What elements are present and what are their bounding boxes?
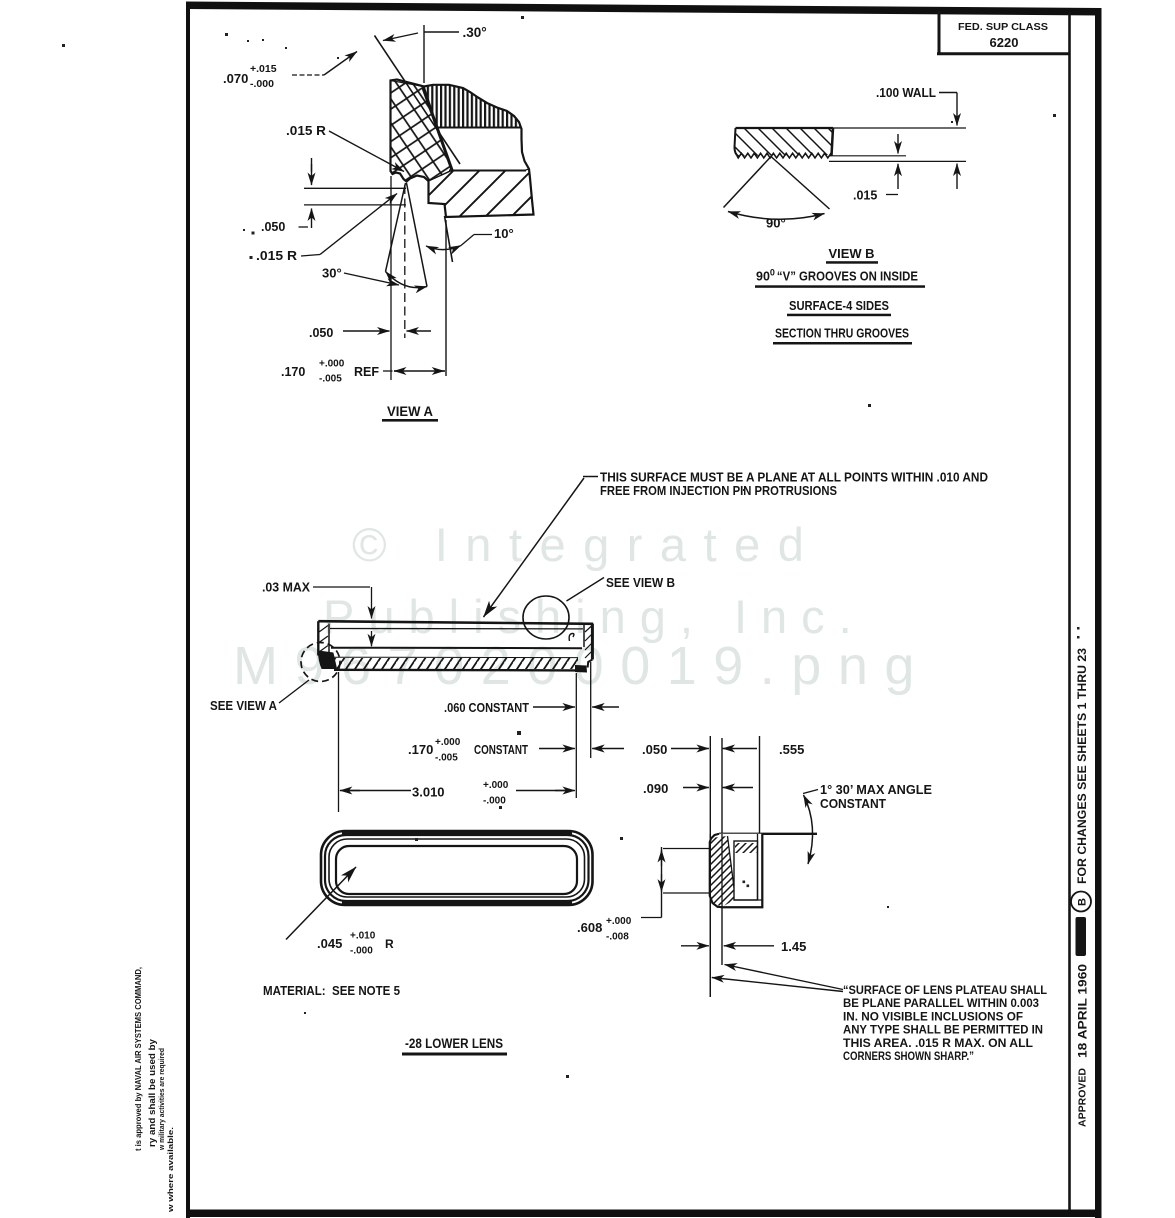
svg-text:SECTION THRU GROOVES: SECTION THRU GROOVES — [775, 327, 909, 341]
svg-text:VIEW A: VIEW A — [387, 404, 433, 419]
svg-text:SURFACE-4 SIDES: SURFACE-4 SIDES — [789, 299, 889, 313]
svg-text:+.010: +.010 — [350, 931, 376, 942]
svg-text:+.000: +.000 — [483, 780, 509, 791]
svg-text:.170: .170 — [281, 365, 305, 379]
svg-text:30°: 30° — [322, 266, 342, 281]
svg-text:R: R — [385, 937, 394, 951]
svg-text:MATERIAL: SEE NOTE 5: MATERIAL: SEE NOTE 5 — [263, 984, 400, 998]
svg-text:18 APRIL 1960: 18 APRIL 1960 — [1076, 964, 1090, 1058]
svg-text:1° 30’ MAX ANGLE: 1° 30’ MAX ANGLE — [820, 783, 932, 797]
svg-text:THIS AREA. .015 R MAX. ON ALL: THIS AREA. .015 R MAX. ON ALL — [843, 1036, 1033, 1050]
svg-text:.03 MAX: .03 MAX — [262, 581, 311, 595]
svg-text:3.010: 3.010 — [412, 785, 445, 800]
svg-text:© Integrated: © Integrated — [352, 518, 821, 571]
svg-text:B: B — [1077, 898, 1089, 906]
svg-text:+.015: +.015 — [250, 63, 277, 75]
svg-text:90°: 90° — [766, 216, 786, 231]
svg-text:6220: 6220 — [990, 35, 1019, 50]
svg-text:FED. SUP CLASS: FED. SUP CLASS — [958, 21, 1048, 33]
svg-text:900“V” GROOVES ON INSIDE: 900“V” GROOVES ON INSIDE — [756, 268, 918, 284]
svg-text:+.000: +.000 — [319, 359, 345, 370]
svg-text:.050: .050 — [642, 742, 667, 757]
svg-text:CONSTANT: CONSTANT — [474, 743, 528, 757]
svg-text:SEE VIEW B: SEE VIEW B — [606, 576, 675, 590]
svg-text:-28 LOWER LENS: -28 LOWER LENS — [405, 1036, 503, 1051]
svg-text:-.008: -.008 — [606, 932, 629, 943]
svg-text:REF: REF — [354, 365, 379, 379]
svg-text:.555: .555 — [779, 742, 804, 757]
svg-text:.060 CONSTANT: .060 CONSTANT — [444, 701, 529, 715]
svg-text:10°: 10° — [494, 226, 514, 241]
svg-text:SEE VIEW A: SEE VIEW A — [210, 699, 277, 713]
svg-text:-.005: -.005 — [319, 374, 342, 385]
svg-text:“SURFACE OF LENS PLATEAU SHALL: “SURFACE OF LENS PLATEAU SHALL — [843, 983, 1047, 997]
svg-text:.30°: .30° — [463, 25, 487, 40]
svg-text:.100 WALL: .100 WALL — [876, 86, 936, 100]
svg-text:ry and shall be used by: ry and shall be used by — [147, 1039, 157, 1147]
svg-text:.015 R: .015 R — [256, 249, 297, 263]
svg-text:-.000: -.000 — [250, 78, 274, 90]
svg-text:ANY TYPE SHALL BE PERMITTED IN: ANY TYPE SHALL BE PERMITTED IN — [843, 1023, 1043, 1037]
svg-text:.608: .608 — [577, 920, 602, 935]
svg-text:CORNERS SHOWN SHARP.”: CORNERS SHOWN SHARP.” — [843, 1049, 974, 1063]
svg-text:-.000: -.000 — [350, 946, 373, 957]
svg-text:CONSTANT: CONSTANT — [820, 797, 886, 811]
svg-text:.015 R: .015 R — [286, 124, 326, 138]
svg-text:+.000: +.000 — [606, 916, 632, 927]
svg-text:APPROVED: APPROVED — [1077, 1068, 1089, 1127]
svg-text:1.45: 1.45 — [781, 939, 806, 954]
svg-text:FREE FROM INJECTION PIN PROTRU: FREE FROM INJECTION PIN PROTRUSIONS — [600, 483, 837, 498]
svg-text:FOR CHANGES SEE SHEETS 1 THRU: FOR CHANGES SEE SHEETS 1 THRU 23 — [1075, 648, 1089, 884]
svg-text:+.000: +.000 — [435, 737, 461, 748]
svg-text:.045: .045 — [317, 936, 342, 951]
svg-text:BE PLANE PARALLEL WITHIN 0.003: BE PLANE PARALLEL WITHIN 0.003 — [843, 996, 1039, 1010]
svg-text:w military activities are requ: w military activities are required — [157, 1048, 166, 1151]
svg-text:.050: .050 — [309, 326, 333, 340]
svg-text:IN. NO VISIBLE INCLUSIONS OF: IN. NO VISIBLE INCLUSIONS OF — [843, 1009, 1023, 1023]
svg-text:VIEW B: VIEW B — [829, 246, 875, 261]
svg-text:-.005: -.005 — [435, 753, 458, 764]
svg-text:-.000: -.000 — [483, 796, 506, 807]
svg-text:w where available.: w where available. — [166, 1127, 175, 1213]
svg-text:.015: .015 — [853, 189, 877, 203]
svg-text:.070: .070 — [223, 71, 248, 86]
svg-text:.050: .050 — [261, 220, 285, 234]
svg-text:t is approved by NAVAL AIR SYS: t is approved by NAVAL AIR SYSTEMS COMMA… — [134, 967, 143, 1151]
svg-text:.090: .090 — [643, 781, 668, 796]
svg-text:.170: .170 — [408, 742, 433, 757]
